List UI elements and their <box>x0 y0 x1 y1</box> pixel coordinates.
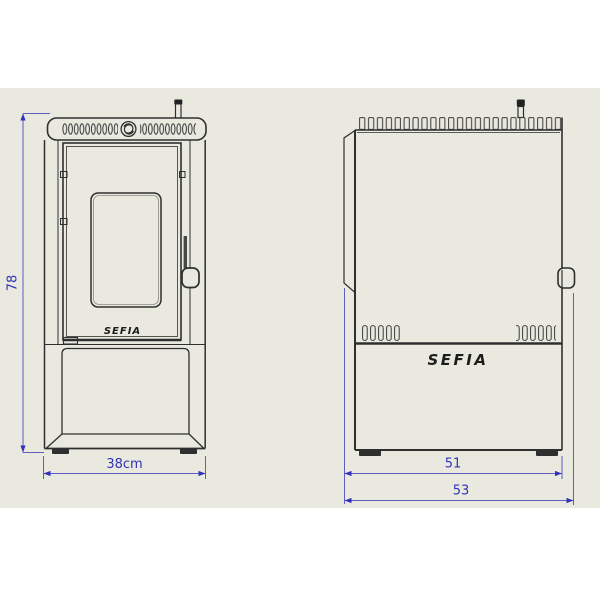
flue-pipe-front <box>176 103 182 119</box>
side-slots-right-icon <box>516 325 556 341</box>
drawing-page: SEFIA SEFIA 78 <box>0 0 600 600</box>
foot-side-front <box>359 450 381 456</box>
flue-cap-front <box>174 100 182 105</box>
brand-wordmark-side: SEFIA <box>428 351 489 369</box>
top-fins-icon <box>358 117 562 130</box>
latch-rod <box>184 236 187 268</box>
height-dimension-label: 78 <box>6 275 21 292</box>
foot-front-right <box>180 449 197 455</box>
vent-grille-right-icon <box>140 122 196 137</box>
flue-pipe-side <box>518 107 524 118</box>
vent-grille-left-icon <box>62 122 118 137</box>
door-handle-side <box>558 268 575 288</box>
depth-body-dimension-label: 51 <box>445 457 462 472</box>
foot-front-left <box>52 449 69 455</box>
width-dimension-label: 38cm <box>106 457 142 472</box>
sheet-background <box>0 88 600 508</box>
side-slots-left-icon <box>361 325 401 341</box>
brand-wordmark-front: SEFIA <box>104 326 141 337</box>
stove-technical-drawing: SEFIA SEFIA 78 <box>0 0 600 600</box>
depth-overall-dimension-label: 53 <box>453 484 470 499</box>
door-handle-front <box>182 268 199 288</box>
foot-side-back <box>536 450 558 456</box>
flue-cap-side <box>517 100 525 107</box>
